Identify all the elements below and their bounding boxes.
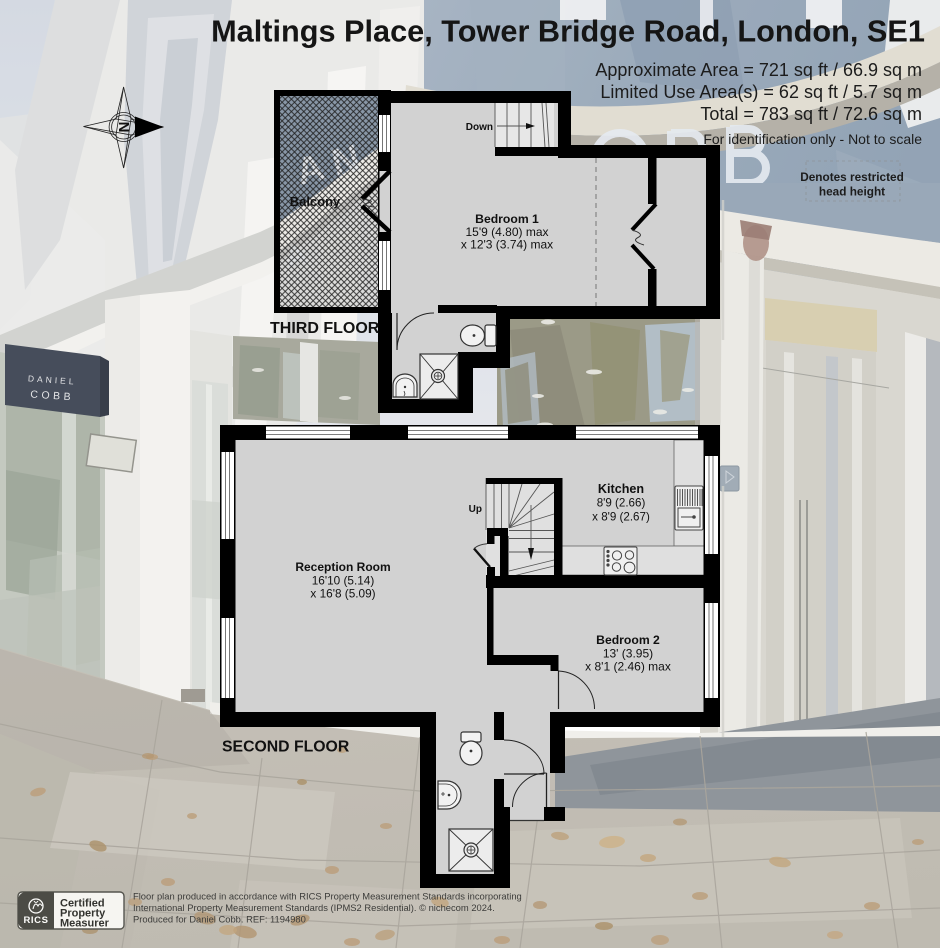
svg-text:Denotes restricted: Denotes restricted <box>800 170 904 184</box>
svg-text:Up: Up <box>469 504 482 515</box>
svg-text:Reception Room: Reception Room <box>295 560 390 574</box>
svg-text:Limited Use Area(s) = 62 sq ft: Limited Use Area(s) = 62 sq ft / 5.7 sq … <box>600 82 922 102</box>
svg-text:Bedroom 2: Bedroom 2 <box>596 633 660 647</box>
svg-text:Bedroom 1: Bedroom 1 <box>475 212 539 226</box>
svg-text:SECOND FLOOR: SECOND FLOOR <box>222 739 350 756</box>
svg-text:Maltings Place, Tower Bridge R: Maltings Place, Tower Bridge Road, Londo… <box>211 14 925 49</box>
svg-text:Approximate Area = 721 sq ft /: Approximate Area = 721 sq ft / 66.9 sq m <box>595 60 922 80</box>
svg-text:x 8'1 (2.46) max: x 8'1 (2.46) max <box>585 660 671 674</box>
svg-text:THIRD FLOOR: THIRD FLOOR <box>270 320 380 337</box>
svg-text:x 16'8 (5.09): x 16'8 (5.09) <box>310 587 375 601</box>
svg-text:Measurer: Measurer <box>60 918 110 930</box>
svg-text:International Property Measure: International Property Measurement Stand… <box>133 902 495 913</box>
svg-text:8'9 (2.66): 8'9 (2.66) <box>597 497 646 510</box>
svg-text:Balcony: Balcony <box>290 194 341 209</box>
svg-text:Kitchen: Kitchen <box>598 482 644 496</box>
svg-text:13' (3.95): 13' (3.95) <box>603 647 653 661</box>
svg-text:Floor plan produced in accorda: Floor plan produced in accordance with R… <box>133 891 522 902</box>
svg-text:16'10 (5.14): 16'10 (5.14) <box>312 574 375 588</box>
svg-text:For identification only - Not: For identification only - Not to scale <box>703 131 922 147</box>
svg-text:Produced for Daniel Cobb. RE: Produced for Daniel Cobb. REF: 1194980 <box>133 914 306 925</box>
svg-text:Down: Down <box>466 122 493 133</box>
svg-text:N: N <box>115 122 132 133</box>
svg-text:head height: head height <box>819 185 885 199</box>
svg-text:Total = 783 sq ft / 72.6 sq m: Total = 783 sq ft / 72.6 sq m <box>700 104 922 124</box>
svg-text:RICS: RICS <box>23 915 48 926</box>
svg-text:x 12'3 (3.74) max: x 12'3 (3.74) max <box>461 238 553 252</box>
svg-text:x 8'9 (2.67): x 8'9 (2.67) <box>592 511 650 524</box>
